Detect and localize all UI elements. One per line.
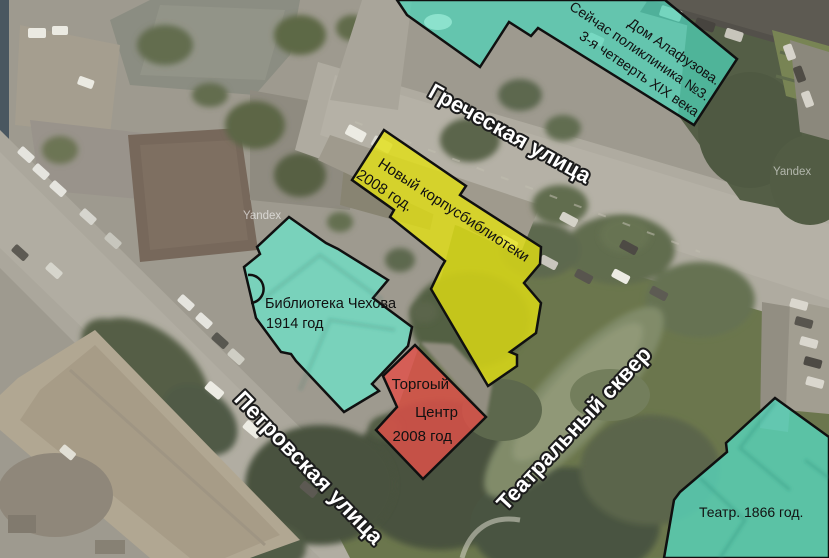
svg-text:Театр. 1866 год.: Театр. 1866 год. [699,504,803,520]
svg-text:1914 год: 1914 год [266,316,324,332]
svg-text:2008 год: 2008 год [393,428,453,445]
svg-text:Yandex: Yandex [773,166,811,178]
svg-text:Центр: Центр [415,404,458,421]
svg-text:Yandex: Yandex [243,210,281,222]
svg-text:Библиотека Чехова: Библиотека Чехова [265,296,397,312]
svg-text:Торгоый: Торгоый [392,376,449,393]
